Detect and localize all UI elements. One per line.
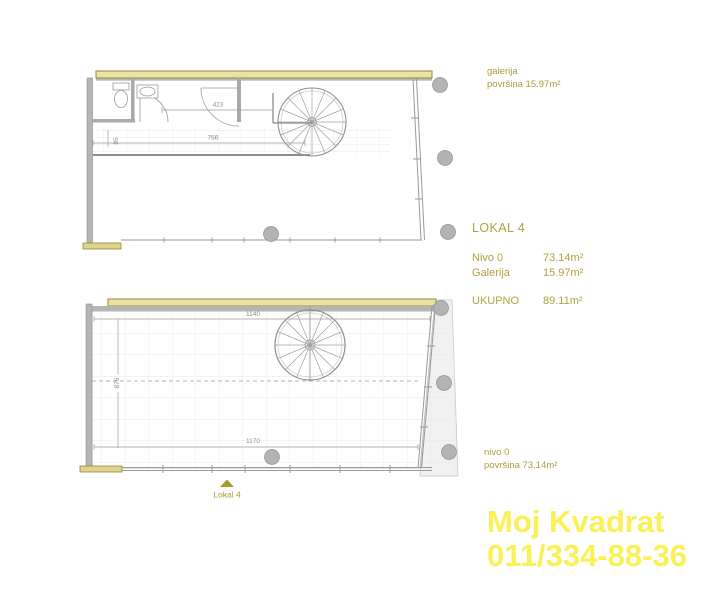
summary-row-value: 15.97m²: [543, 266, 583, 281]
summary-row-label: Nivo 0: [472, 251, 543, 266]
svg-text:Lokal 4: Lokal 4: [213, 490, 241, 500]
level0-area-line1: nivo 0: [484, 446, 557, 459]
svg-text:876: 876: [114, 377, 121, 388]
bathroom-bottom-wall: [93, 119, 135, 123]
column: [433, 78, 448, 93]
svg-text:1140: 1140: [246, 311, 260, 318]
svg-text:423: 423: [213, 102, 224, 109]
bottom-left-wall: [83, 243, 121, 249]
svg-text:95: 95: [113, 137, 120, 145]
agency-watermark: Moj Kvadrat 011/334-88-36: [487, 505, 687, 573]
entrance-triangle-icon: [220, 480, 234, 488]
gallery-floor-tiles: [93, 127, 390, 155]
dimension-423: 423: [162, 102, 273, 114]
interior-floor-tiles: [92, 311, 434, 468]
column: [442, 445, 457, 460]
gallery-area-line1: galerija: [487, 65, 560, 78]
upper-plan-gallery: 423 766 95: [80, 60, 460, 265]
summary-total-value: 89.11m²: [543, 294, 583, 309]
right-glazed-wall: [411, 79, 425, 240]
column: [441, 225, 456, 240]
agency-phone: 011/334-88-36: [487, 539, 687, 573]
toilet-fixture: [113, 83, 129, 108]
bottom-left-wall: [80, 466, 122, 472]
left-wall: [86, 304, 92, 468]
summary-row-value: 73.14m²: [543, 251, 583, 266]
sink-fixture: [137, 85, 158, 98]
left-wall: [87, 78, 93, 245]
level0-area-label: nivo 0 površina 73.14m²: [484, 446, 557, 472]
summary-row: Galerija 15.97m²: [472, 266, 583, 281]
column: [264, 227, 279, 242]
svg-text:1170: 1170: [246, 438, 260, 445]
summary-row: Nivo 0 73.14m²: [472, 251, 583, 266]
agency-name: Moj Kvadrat: [487, 505, 687, 539]
top-wall: [96, 71, 432, 81]
summary-total-row: UKUPNO 89.11m²: [472, 294, 583, 309]
entrance-marker: Lokal 4: [213, 480, 241, 500]
gallery-area-line2: površina 15.97m²: [487, 78, 560, 91]
summary-title: LOKAL 4: [472, 221, 583, 235]
top-wall: [92, 299, 436, 311]
bathroom-partition-wall: [131, 78, 135, 122]
area-summary: LOKAL 4 Nivo 0 73.14m² Galerija 15.97m² …: [472, 221, 583, 309]
svg-text:766: 766: [208, 135, 219, 142]
bathroom-right-wall: [237, 78, 241, 122]
summary-total-label: UKUPNO: [472, 294, 543, 309]
column: [437, 376, 452, 391]
level0-area-line2: površina 73.14m²: [484, 459, 557, 472]
column: [438, 151, 453, 166]
summary-row-label: Galerija: [472, 266, 543, 281]
column: [434, 301, 449, 316]
lower-plan-level0: 1140 876 1170 Lokal 4: [78, 290, 478, 510]
column: [265, 450, 280, 465]
floor-plan-sheet: 423 766 95: [0, 0, 708, 600]
gallery-area-label: galerija površina 15.97m²: [487, 65, 560, 91]
